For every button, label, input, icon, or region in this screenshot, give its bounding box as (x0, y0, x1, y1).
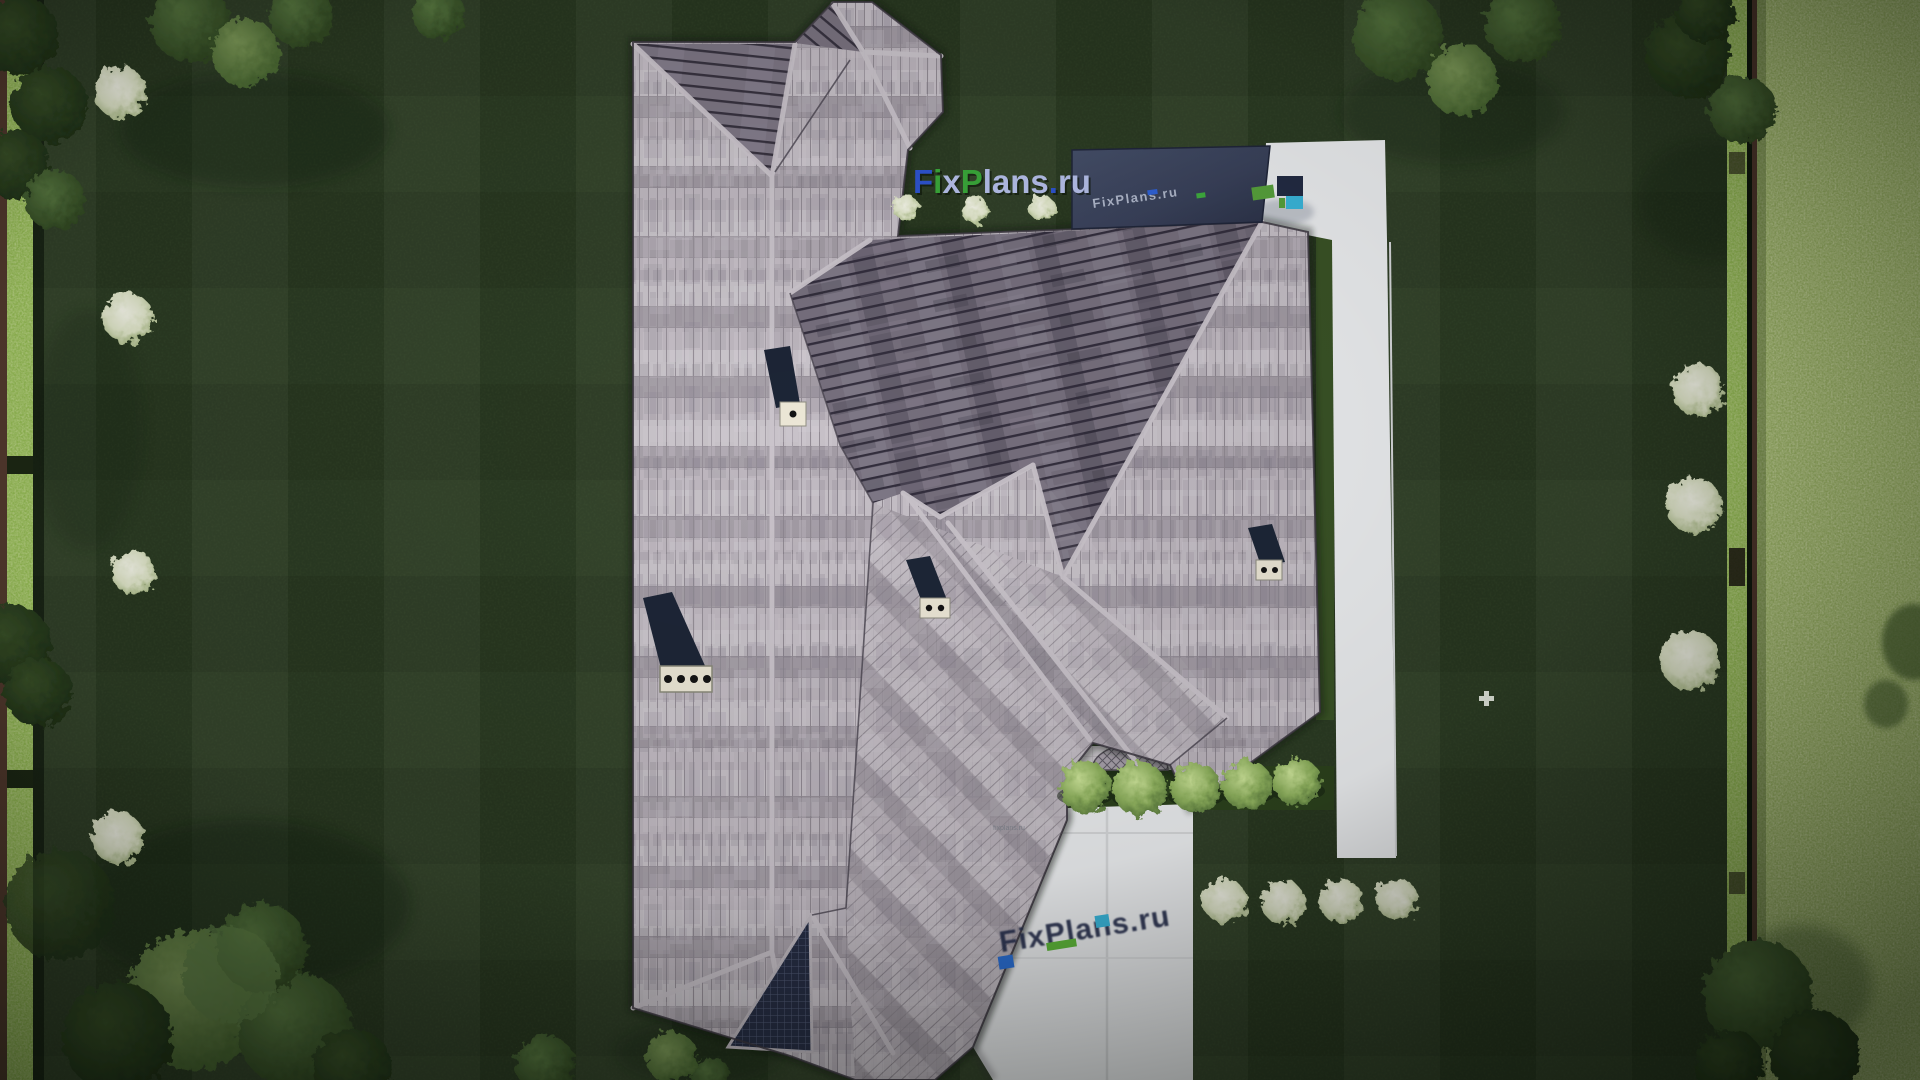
aerial-render: FixPlans.ru FixPlans.ru FixPlans.ru FixP… (0, 0, 1920, 1080)
vignette (0, 0, 1920, 1080)
aerial-render-stage: FixPlans.ru FixPlans.ru FixPlans.ru FixP… (0, 0, 1920, 1080)
